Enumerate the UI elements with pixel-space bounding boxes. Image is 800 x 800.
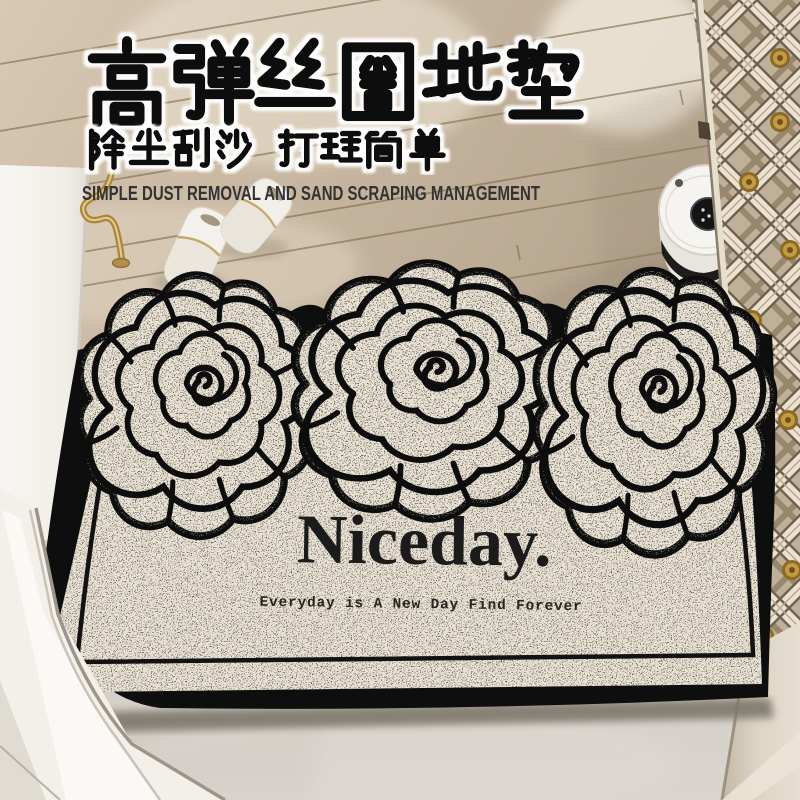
svg-text:SIMPLE DUST REMOVAL AND SAND S: SIMPLE DUST REMOVAL AND SAND SCRAPING MA… [82, 182, 540, 205]
